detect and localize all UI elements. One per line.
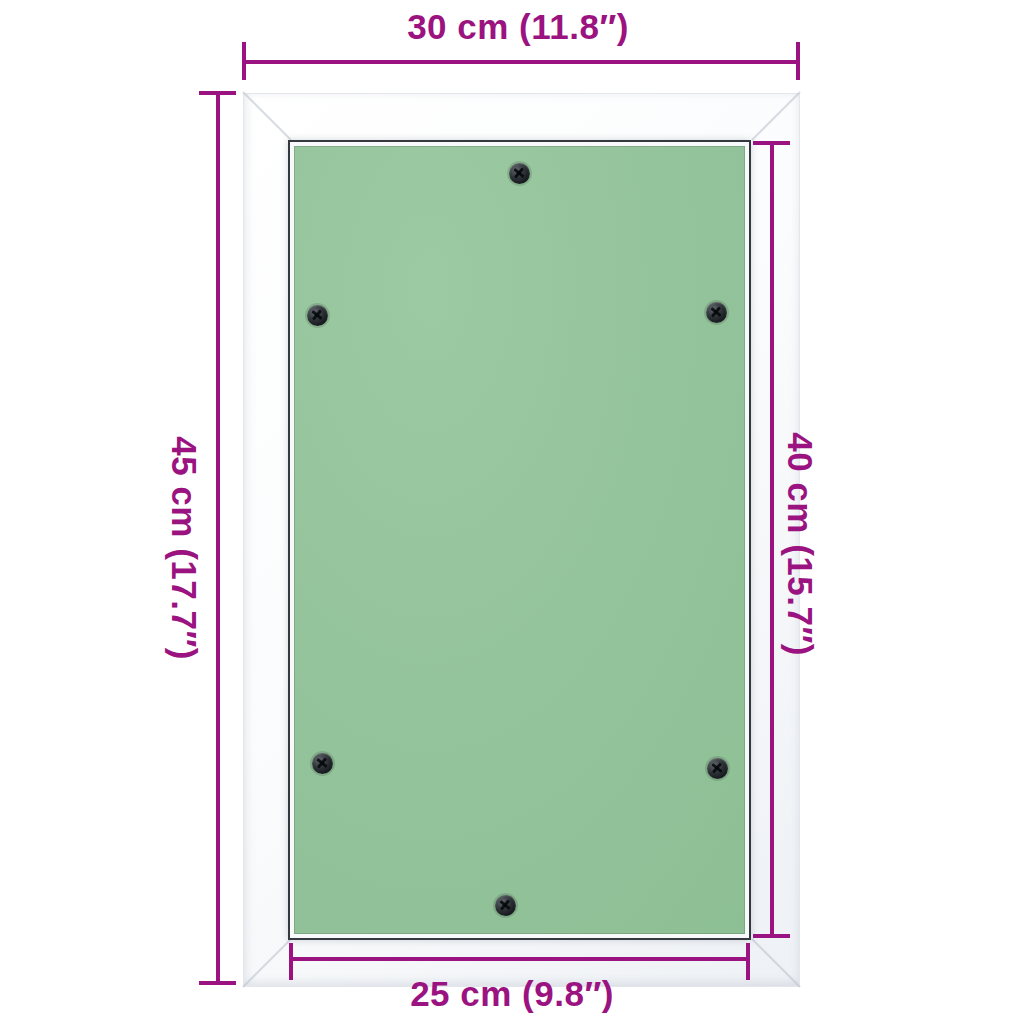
dimension-tick-left-top [199,91,236,95]
dimension-line-bottom [291,957,748,961]
dimension-label-right: 40 cm (15.7″) [780,432,820,656]
dimension-line-top [243,60,799,64]
dimension-tick-top-left [242,42,246,80]
dimension-diagram: 30 cm (11.8″) 45 cm (17.7″) 40 cm (15.7″… [0,0,1024,1024]
dimension-line-left [216,93,220,985]
dimension-tick-bottom-left [289,943,293,980]
gypsum-board-panel [294,146,745,934]
screw-lower-left [312,753,333,774]
screw-bottom-center [495,895,516,916]
dimension-label-top: 30 cm (11.8″) [407,7,629,47]
dimension-line-right [770,143,774,938]
dimension-tick-right-top [753,141,790,145]
dimension-label-left: 45 cm (17.7″) [164,436,204,660]
dimension-tick-bottom-right [746,943,750,980]
dimension-tick-right-bottom [753,934,790,938]
screw-upper-right [706,302,727,323]
dimension-tick-top-right [796,42,800,80]
screw-upper-left [307,305,328,326]
dimension-tick-left-bottom [199,981,236,985]
screw-top-center [509,163,530,184]
screw-lower-right [707,758,728,779]
dimension-label-bottom: 25 cm (9.8″) [410,974,614,1014]
